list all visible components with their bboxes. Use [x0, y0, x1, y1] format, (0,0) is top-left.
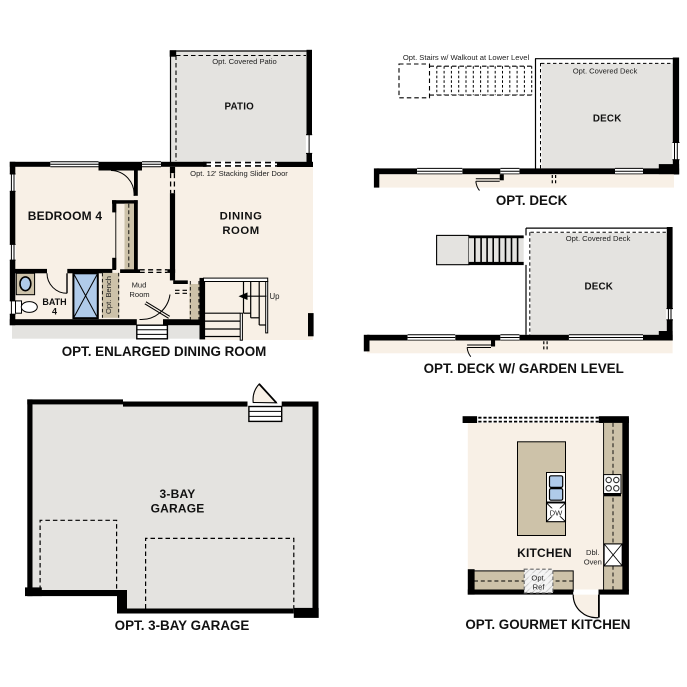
- svg-text:Opt. Covered Deck: Opt. Covered Deck: [566, 234, 631, 243]
- svg-text:Up: Up: [270, 292, 281, 301]
- svg-text:BEDROOM 4: BEDROOM 4: [28, 209, 103, 223]
- svg-text:GARAGE: GARAGE: [151, 502, 205, 516]
- svg-text:Oven: Oven: [584, 557, 602, 566]
- svg-text:Room: Room: [129, 290, 149, 299]
- svg-text:OPT. ENLARGED DINING ROOM: OPT. ENLARGED DINING ROOM: [62, 344, 267, 359]
- svg-text:3-BAY: 3-BAY: [160, 487, 196, 501]
- svg-text:DECK: DECK: [585, 281, 614, 292]
- svg-text:KITCHEN: KITCHEN: [517, 546, 572, 560]
- svg-text:OPT. DECK: OPT. DECK: [496, 193, 568, 208]
- svg-text:DECK: DECK: [593, 114, 622, 125]
- svg-text:DINING: DINING: [220, 211, 263, 223]
- svg-text:Opt. Stairs w/ Walkout at Lowe: Opt. Stairs w/ Walkout at Lower Level: [403, 53, 530, 62]
- svg-text:Opt. 12' Stacking Slider Door: Opt. 12' Stacking Slider Door: [190, 169, 288, 178]
- svg-text:Opt.: Opt.: [531, 573, 545, 582]
- svg-text:4: 4: [52, 307, 57, 317]
- svg-text:PATIO: PATIO: [224, 102, 254, 113]
- svg-text:BATH: BATH: [42, 297, 66, 307]
- svg-text:Dbl.: Dbl.: [586, 548, 600, 557]
- svg-text:Opt. Bench: Opt. Bench: [104, 276, 113, 314]
- svg-text:Opt. Covered Patio: Opt. Covered Patio: [212, 57, 277, 66]
- svg-text:Opt. Covered Deck: Opt. Covered Deck: [573, 67, 638, 76]
- svg-text:OPT. DECK W/ GARDEN LEVEL: OPT. DECK W/ GARDEN LEVEL: [424, 361, 624, 376]
- svg-text:OPT. 3-BAY GARAGE: OPT. 3-BAY GARAGE: [115, 618, 250, 633]
- svg-text:Ref: Ref: [533, 582, 546, 591]
- svg-text:DW: DW: [550, 508, 563, 517]
- svg-text:ROOM: ROOM: [222, 225, 259, 237]
- svg-text:Mud: Mud: [132, 281, 147, 290]
- svg-text:OPT. GOURMET KITCHEN: OPT. GOURMET KITCHEN: [465, 617, 630, 632]
